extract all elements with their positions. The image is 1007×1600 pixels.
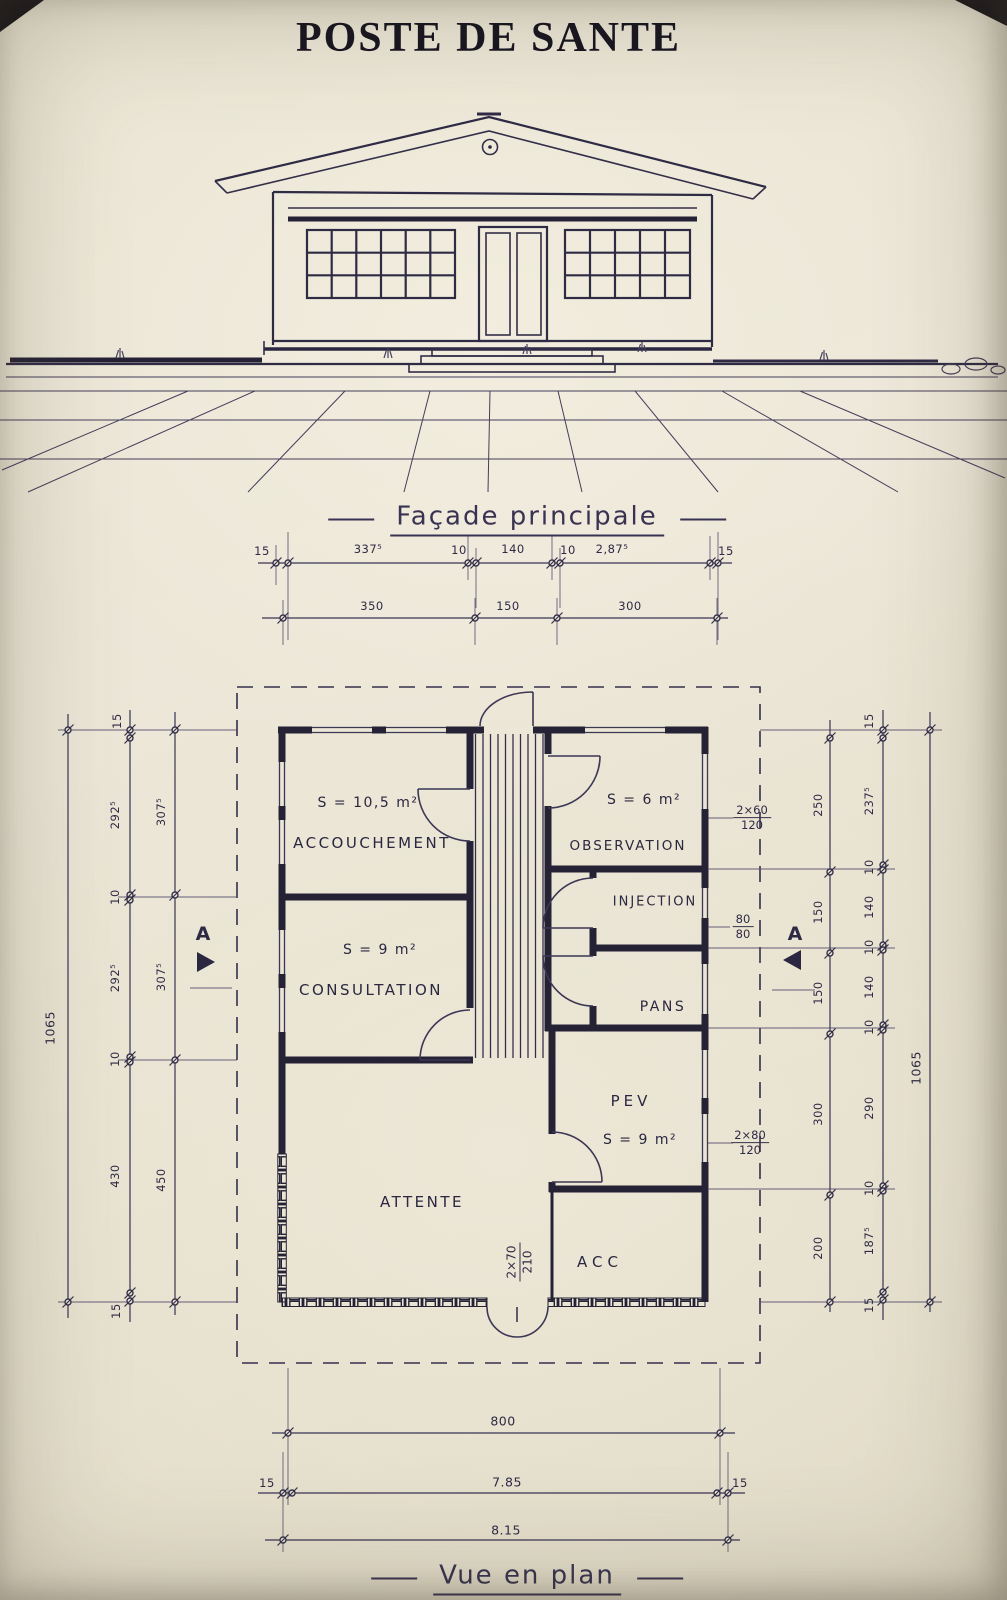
dim-label: 140 — [862, 975, 876, 998]
dim-label: 200 — [811, 1236, 825, 1259]
dim-label: 2,87⁵ — [596, 542, 629, 556]
entry-steps — [409, 349, 615, 372]
dim-label: 10 — [108, 889, 122, 905]
room-area-accouchement: S = 10,5 m² — [318, 795, 419, 811]
dim-label: 140 — [501, 542, 524, 556]
dim-label: 15 — [718, 544, 734, 558]
dim-label-total: 1065 — [43, 1011, 58, 1045]
dim-label: 350 — [360, 599, 383, 613]
door-note-entry: 2×70 210 — [505, 1243, 536, 1282]
dim-label: 10 — [862, 859, 876, 875]
section-letter-left: A — [196, 923, 211, 945]
dim-label: 292⁵ — [108, 801, 122, 830]
dim-label-total: 1065 — [909, 1051, 924, 1085]
dim-label: 337⁵ — [354, 542, 383, 556]
room-area-pev: S = 9 m² — [603, 1132, 677, 1148]
dim-label: 7.85 — [492, 1475, 522, 1490]
dim-label: 10 — [862, 1019, 876, 1035]
ground-pavement — [0, 342, 1007, 492]
section-mark-left — [190, 952, 232, 988]
room-label-pev: PEV — [611, 1092, 652, 1110]
dim-label: 15 — [109, 1303, 123, 1319]
facade-window-left — [307, 230, 455, 298]
room-area-observation: S = 6 m² — [607, 792, 681, 808]
room-label-acc: ACC — [577, 1253, 623, 1271]
room-label-injection: INJECTION — [613, 895, 697, 910]
dim-label: 450 — [154, 1168, 168, 1191]
corridor-hatching — [473, 734, 545, 1058]
dim-label: 307⁵ — [154, 798, 168, 827]
window-note-observation: 2×60 120 — [733, 803, 771, 833]
dim-label: 10 — [862, 1180, 876, 1196]
plan-caption: Vue en plan — [371, 1561, 683, 1596]
dim-label: 10 — [108, 1051, 122, 1067]
dim-label: 800 — [490, 1414, 515, 1429]
dim-label: 300 — [618, 599, 641, 613]
dim-label: 140 — [862, 895, 876, 918]
dim-label: 15 — [259, 1476, 275, 1490]
scanned-blueprint-page: POSTE DE SANTE — [0, 0, 1007, 1600]
dim-label: 290 — [862, 1096, 876, 1119]
dim-label: 150 — [811, 981, 825, 1004]
dim-label: 15 — [862, 1297, 876, 1313]
dim-label: 15 — [110, 713, 124, 729]
dim-label: 10 — [862, 939, 876, 955]
room-label-pans: PANS — [640, 999, 686, 1015]
dim-label: 187⁵ — [862, 1227, 876, 1256]
dim-label: 15 — [732, 1476, 748, 1490]
room-label-attente: ATTENTE — [380, 1193, 464, 1211]
room-area-consultation: S = 9 m² — [343, 942, 417, 958]
dim-label: 292⁵ — [108, 964, 122, 993]
facade-caption: Façade principale — [328, 502, 726, 537]
room-label-observation: OBSERVATION — [570, 838, 687, 854]
room-label-consultation: CONSULTATION — [299, 981, 443, 999]
dim-label: 237⁵ — [862, 787, 876, 816]
dim-label: 250 — [811, 793, 825, 816]
section-letter-right: A — [788, 923, 803, 945]
window-note-pev: 2×80 120 — [731, 1128, 769, 1158]
dim-label: 150 — [496, 599, 519, 613]
dim-label: 307⁵ — [154, 963, 168, 992]
room-label-accouchement: ACCOUCHEMENT — [293, 834, 451, 852]
dim-label: 300 — [811, 1102, 825, 1125]
dim-label: 8.15 — [491, 1523, 521, 1538]
dim-label: 15 — [254, 544, 270, 558]
dim-label: 15 — [862, 713, 876, 729]
dim-label: 430 — [108, 1164, 122, 1187]
blueprint-linework — [0, 0, 1007, 1600]
dim-label: 150 — [811, 900, 825, 923]
facade-window-right — [565, 230, 690, 298]
claustra-walls — [278, 1154, 705, 1307]
floor-plan-drawing — [237, 687, 760, 1363]
window-note-injection: 80 80 — [733, 912, 754, 942]
dim-label: 10 — [560, 543, 576, 557]
dim-label: 10 — [451, 543, 467, 557]
section-mark-right — [772, 950, 815, 990]
facade-entry-door — [479, 227, 547, 341]
facade-elevation-drawing — [0, 114, 1007, 492]
